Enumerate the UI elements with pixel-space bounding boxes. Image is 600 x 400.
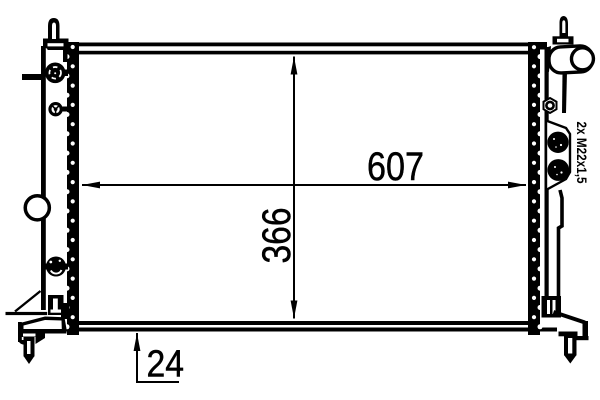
svg-text:607: 607 bbox=[367, 145, 424, 189]
svg-text:2x M22x1,5: 2x M22x1,5 bbox=[574, 122, 589, 184]
svg-text:24: 24 bbox=[147, 344, 185, 386]
svg-text:366: 366 bbox=[255, 208, 299, 264]
